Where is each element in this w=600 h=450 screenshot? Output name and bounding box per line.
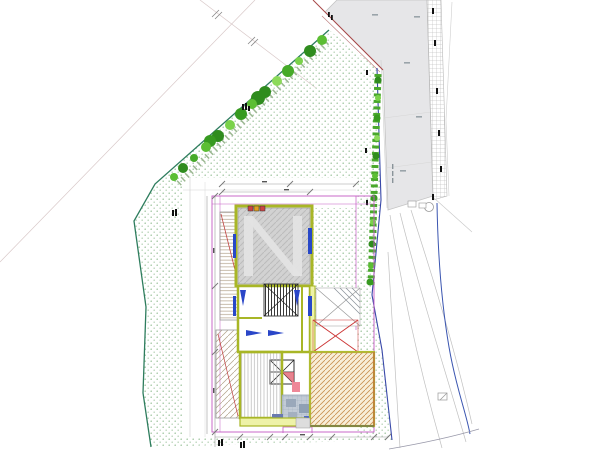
road-vertical-label — [392, 171, 393, 176]
window-mark — [308, 228, 312, 254]
tree — [225, 120, 235, 130]
corner-micro-label — [331, 15, 333, 20]
window-mark — [233, 296, 236, 316]
tree — [304, 45, 316, 57]
house-upper-block — [233, 206, 312, 286]
road-micro-label — [414, 16, 420, 18]
lower-room-boards — [240, 352, 282, 418]
tree — [170, 173, 178, 181]
site-plan-drawing — [0, 0, 600, 450]
parcel-micro-label — [175, 209, 177, 216]
south-micro-label — [218, 440, 220, 446]
site-plan-page — [0, 0, 600, 450]
dim-micro-text — [300, 434, 305, 435]
road-micro-label — [400, 170, 406, 172]
band-micro-label — [432, 194, 434, 200]
terrace-slats — [310, 352, 374, 426]
band-micro-label — [434, 40, 436, 46]
wall-band — [310, 286, 315, 352]
tree — [201, 142, 211, 152]
window-mark — [308, 296, 312, 316]
tree — [317, 35, 327, 45]
dim-micro-text — [284, 189, 289, 190]
treeline-micro-label — [245, 103, 247, 110]
plan-layers — [0, 0, 600, 450]
shrub — [374, 115, 381, 122]
shrub — [373, 153, 380, 160]
roof-detail-red — [248, 206, 253, 211]
road-end-symbol — [419, 203, 426, 208]
east-trellis — [316, 288, 360, 326]
shrub — [372, 173, 378, 179]
shrub — [367, 279, 374, 286]
band-micro-label — [440, 166, 442, 172]
tree — [282, 65, 294, 77]
parcel-micro-label — [172, 210, 174, 216]
road-vertical-label — [392, 178, 393, 183]
road-vertical-label — [392, 164, 393, 169]
window-mark — [233, 234, 236, 258]
south-micro-label — [243, 441, 245, 448]
shrub — [375, 77, 382, 84]
hedge-micro-label — [365, 148, 367, 153]
south-micro-label — [221, 439, 223, 446]
road-micro-label — [416, 116, 422, 118]
west-deck-lower — [216, 330, 240, 418]
watermark-bar — [293, 216, 302, 276]
shrub — [375, 95, 381, 101]
road-micro-label — [372, 14, 378, 16]
tree — [178, 163, 188, 173]
shrub — [374, 135, 380, 141]
dim-micro-text — [213, 388, 214, 393]
band-micro-label — [432, 8, 434, 14]
floorboards — [240, 352, 282, 418]
tree — [272, 76, 282, 86]
roof-detail-red — [260, 206, 265, 211]
dim-micro-text — [213, 248, 214, 253]
treeline-micro-label — [248, 106, 250, 111]
band-micro-label — [438, 130, 440, 136]
tree — [190, 154, 198, 162]
shrub — [370, 219, 376, 225]
hedge-micro-label — [366, 70, 368, 75]
south-wall-band — [240, 418, 310, 428]
band-micro-label — [436, 88, 438, 94]
dim-micro-text — [262, 181, 267, 182]
house-mid-block — [233, 284, 315, 352]
treeline-micro-label — [242, 104, 244, 110]
road-end-symbol — [408, 201, 416, 207]
shrub — [369, 241, 376, 248]
pink-marking — [292, 382, 300, 392]
steps — [296, 418, 310, 428]
east-wood-terrace — [310, 352, 374, 426]
shrub — [368, 263, 374, 269]
tree — [295, 57, 303, 65]
road-micro-label — [404, 62, 410, 64]
corner-micro-label — [328, 12, 330, 17]
south-micro-label — [240, 442, 242, 448]
tile-block — [286, 399, 296, 407]
roof-detail-orange — [254, 206, 259, 211]
